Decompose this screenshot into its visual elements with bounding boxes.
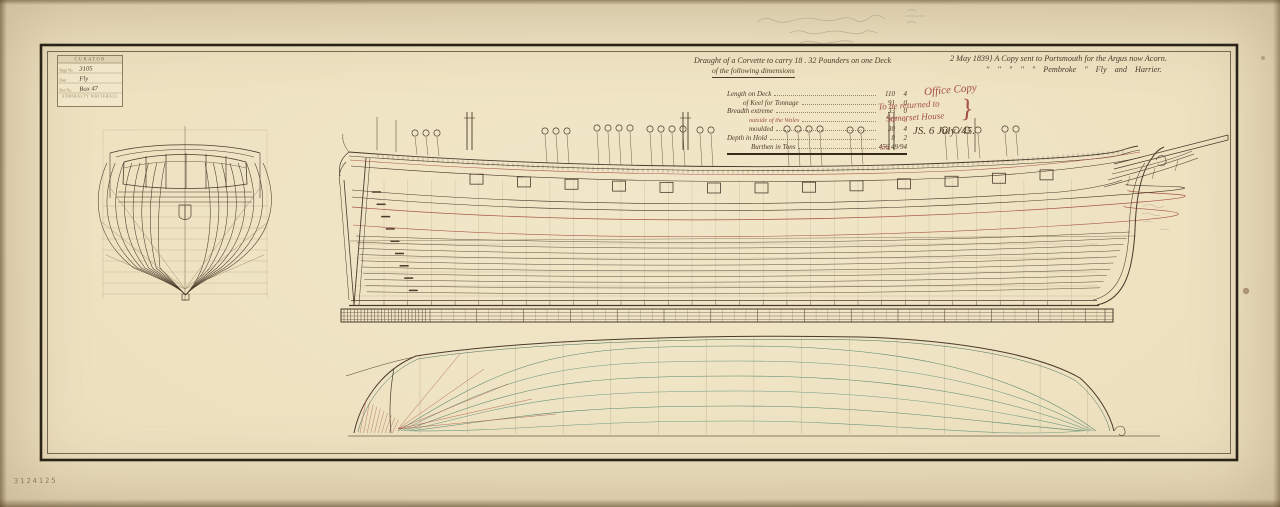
dimension-label: moulded [727,125,773,133]
inscription-line2: ″ ″ ″ ″ ″ Pembroke ″ Fly and Harrier. [950,64,1235,75]
ship-draught-drawing [0,0,1280,507]
dimension-inches: 4 [895,90,907,98]
dimension-label: of Keel for Tonnage [727,99,799,107]
title-line2: of the following dimensions [712,66,795,78]
stamp-row-label: Regn No. [58,69,79,73]
dimension-row-red: outside of the Wales 31 6 [727,115,907,124]
red-brace: } [960,94,975,125]
stamp-row-label: Date [58,79,79,83]
stamp-row-value: Fly [79,75,88,83]
inscription-line1: 2 May 1839} A Copy sent to Portsmouth fo… [950,53,1235,64]
dimension-label: Length on Deck [727,90,771,98]
inscription-brace: } [989,54,992,63]
plan-border [41,45,1237,460]
burthen-correction-red: 579 [880,146,889,152]
dimension-label: Breadth extreme [727,107,773,115]
dimension-label: Depth in Hold [727,134,767,142]
dimension-row: Depth in Hold 8 2 [727,133,907,142]
dimension-inches: 4 [895,125,907,133]
dimension-feet: 8 [879,134,895,142]
dimension-label: outside of the Wales [727,117,799,124]
dimension-row: Length on Deck 110 4 [727,89,907,98]
dimension-feet: 30 [879,125,895,133]
dimension-feet: 110 [879,90,895,98]
title-line1: Draught of a Corvette to carry 18 . 32 P… [694,56,894,66]
stamp-row-value: Box 47 [79,85,98,93]
stamp-row-value: 3105 [79,65,93,73]
dimension-inches: 2 [895,134,907,142]
inscription-date: 2 May 1839 [950,54,989,63]
stamp-footer: ADMIRALTY WHITEHALL [58,93,122,98]
inscription-text1: A Copy sent to Portsmouth for the Argus … [994,54,1167,63]
stamp-row-label: Box No. [58,89,79,93]
dimensions-table: Length on Deck 110 4 of Keel for Tonnage… [727,89,907,155]
paper-stains [1243,56,1265,294]
negative-number: 3124125 [14,477,58,486]
museum-stamp: CURATOR Regn No. 3105 Date Fly Box No. B… [57,55,123,107]
half-breadth-stations [420,338,1088,434]
stamp-header: CURATOR [58,56,122,63]
burthen-label: Burthen in Tons [727,143,795,151]
surveyor-signature: JS. 6 July /45. [913,125,975,137]
keel-scale-bar [341,309,1113,322]
draught-title: Draught of a Corvette to carry 18 . 32 P… [694,56,894,78]
scanned-ship-draught: CURATOR Regn No. 3105 Date Fly Box No. B… [0,0,1280,507]
half-breadth-plan [346,336,1160,436]
copy-inscription: 2 May 1839} A Copy sent to Portsmouth fo… [950,53,1235,75]
dimension-row: moulded 30 4 [727,124,907,133]
body-plan [98,126,271,301]
